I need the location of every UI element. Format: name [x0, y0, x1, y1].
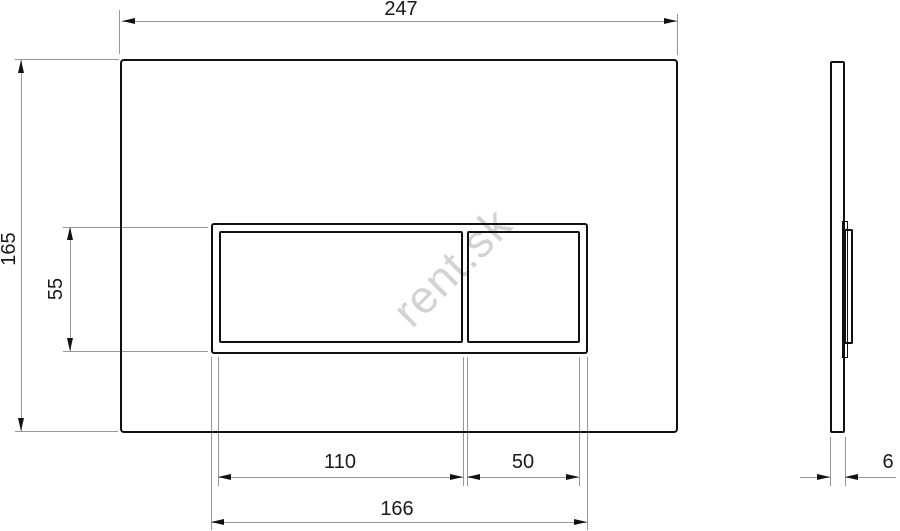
- dim-arrowhead: [467, 474, 480, 480]
- dimension-line: [467, 477, 579, 478]
- small-flush-button: [467, 231, 580, 343]
- dim-arrowhead: [664, 18, 677, 24]
- dim-arrowhead: [845, 474, 858, 480]
- extension-line: [119, 10, 120, 54]
- dim-arrowhead: [211, 519, 224, 525]
- dim-label-plate-width: 247: [384, 0, 417, 19]
- dim-arrowhead: [450, 474, 463, 480]
- large-flush-button: [219, 231, 463, 343]
- dimension-line: [122, 21, 677, 22]
- extension-line: [15, 431, 118, 432]
- dimension-line: [218, 477, 463, 478]
- dim-arrowhead: [218, 474, 231, 480]
- dimension-line: [70, 227, 71, 351]
- dim-label-plate-height: 165: [0, 232, 19, 265]
- dim-arrowhead: [566, 474, 579, 480]
- dim-label-button-frame-width: 166: [380, 499, 413, 519]
- extension-line: [677, 14, 678, 55]
- dim-arrowhead: [817, 474, 830, 480]
- extension-line: [15, 59, 119, 60]
- side-button-protrusion: [844, 229, 853, 344]
- dimension-line: [21, 60, 22, 431]
- dim-arrowhead: [67, 338, 73, 351]
- dim-arrowhead: [574, 519, 587, 525]
- dim-label-small-button-width: 50: [512, 452, 534, 472]
- dim-label-button-height: 55: [46, 278, 66, 300]
- dim-arrowhead: [18, 60, 24, 73]
- dim-label-large-button-width: 110: [324, 452, 356, 472]
- dimension-line: [211, 522, 587, 523]
- dim-arrowhead: [67, 227, 73, 240]
- extension-line: [830, 437, 831, 486]
- dim-arrowhead: [18, 418, 24, 431]
- dim-label-plate-thickness: 6: [882, 452, 893, 472]
- technical-drawing-canvas: rent.sk 247 165 55: [0, 0, 900, 531]
- dim-arrowhead: [122, 18, 135, 24]
